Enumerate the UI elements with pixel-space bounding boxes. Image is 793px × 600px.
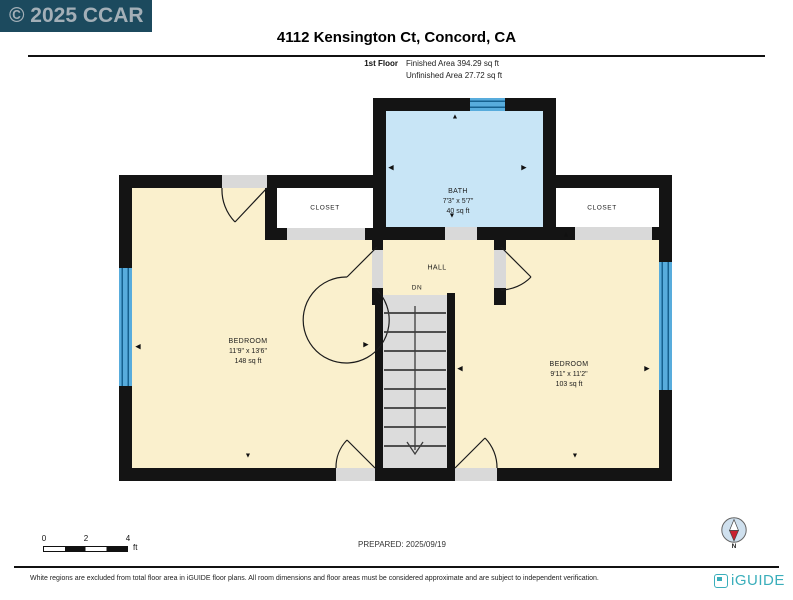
dimension-arrow-down-icon: ▼: [572, 453, 579, 460]
dimension-arrow-right-icon: ▶: [644, 366, 649, 373]
wall-segment: [543, 175, 672, 188]
compass-north-label: N: [732, 543, 737, 550]
stair-wall: [447, 293, 455, 481]
dimension-arrow-up-icon: ▲: [452, 114, 459, 121]
footer-disclaimer: White regions are excluded from total fl…: [30, 575, 670, 582]
wall-segment: [372, 235, 383, 250]
footer-divider: [14, 566, 779, 568]
dimension-arrow-right-icon: ▶: [363, 342, 368, 349]
dimension-arrow-up-icon: ▲: [563, 232, 570, 239]
page-title: 4112 Kensington Ct, Concord, CA: [0, 29, 793, 46]
closet-right-label: CLOSET: [587, 205, 617, 212]
scale-bar: [43, 546, 128, 552]
dimension-arrow-left-icon: ◀: [135, 344, 140, 351]
bedroom-left-label: BEDROOM 11'9" x 13'6" 148 sq ft: [229, 337, 268, 367]
hall-left-door-opening: [372, 250, 383, 288]
window: [119, 268, 132, 386]
scale-tick-2: 2: [84, 534, 88, 543]
bedroom-left-dimensions: 11'9" x 13'6": [229, 347, 268, 357]
iguide-logo: iGUIDE: [714, 572, 785, 589]
ccar-copyright-banner: © 2025 CCAR: [0, 0, 152, 32]
scale-tick-4: 4: [126, 534, 130, 543]
compass-rose: [720, 516, 748, 544]
bedroom-left-area: 148 sq ft: [229, 357, 268, 367]
wall-segment: [372, 288, 383, 305]
bath-door-opening: [445, 227, 477, 240]
hall-label: HALL: [427, 265, 446, 272]
bath-name: BATH: [443, 187, 474, 197]
bedroom-right-name: BEDROOM: [550, 360, 589, 370]
closet-left-label: CLOSET: [310, 205, 340, 212]
door-opening: [455, 468, 497, 481]
wall-segment: [119, 468, 672, 481]
window: [659, 262, 672, 390]
bedroom-right-dimensions: 9'11" x 11'2": [550, 370, 589, 380]
iguide-logo-icon: [714, 574, 728, 588]
unfinished-area-text: Unfinished Area 27.72 sq ft: [406, 71, 502, 80]
hall-right-door-opening: [494, 250, 506, 288]
wall-segment: [494, 288, 506, 305]
compass-icon: N: [720, 516, 748, 549]
window: [470, 98, 505, 111]
stairs-down-label: DN: [412, 285, 423, 292]
floor-label: 1st Floor: [330, 59, 398, 68]
dimension-arrow-left-icon: ◀: [457, 366, 462, 373]
bedroom-right-label: BEDROOM 9'11" x 11'2" 103 sq ft: [550, 360, 589, 390]
bedroom-right-area: 103 sq ft: [550, 380, 589, 390]
door-opening: [222, 175, 267, 188]
title-divider: [28, 55, 765, 57]
stair-wall: [375, 293, 383, 481]
bath-dimensions: 7'3" x 5'7": [443, 197, 474, 207]
dimension-arrow-left-icon: ◀: [388, 165, 393, 172]
bath-label: BATH 7'3" x 5'7" 40 sq ft: [443, 187, 474, 217]
wall-segment: [373, 98, 386, 240]
scale-unit-label: ft: [133, 543, 137, 552]
door-opening: [336, 468, 375, 481]
prepared-date: PREPARED: 2025/09/19: [358, 540, 446, 549]
iguide-brand-text: iGUIDE: [731, 572, 785, 589]
bath-area: 40 sq ft: [443, 207, 474, 217]
wall-segment: [373, 98, 556, 111]
closet-left-slider: [287, 228, 365, 240]
finished-area-text: Finished Area 394.29 sq ft: [406, 59, 499, 68]
dimension-arrow-down-icon: ▼: [245, 453, 252, 460]
scale-tick-0: 0: [42, 534, 46, 543]
wall-segment: [494, 235, 506, 250]
wall-segment: [543, 98, 556, 240]
closet-right-slider: [575, 227, 652, 240]
staircase-fill: [383, 295, 447, 468]
dimension-arrow-right-icon: ▶: [521, 165, 526, 172]
bedroom-left-name: BEDROOM: [229, 337, 268, 347]
dimension-arrow-down-icon: ▼: [449, 213, 456, 220]
